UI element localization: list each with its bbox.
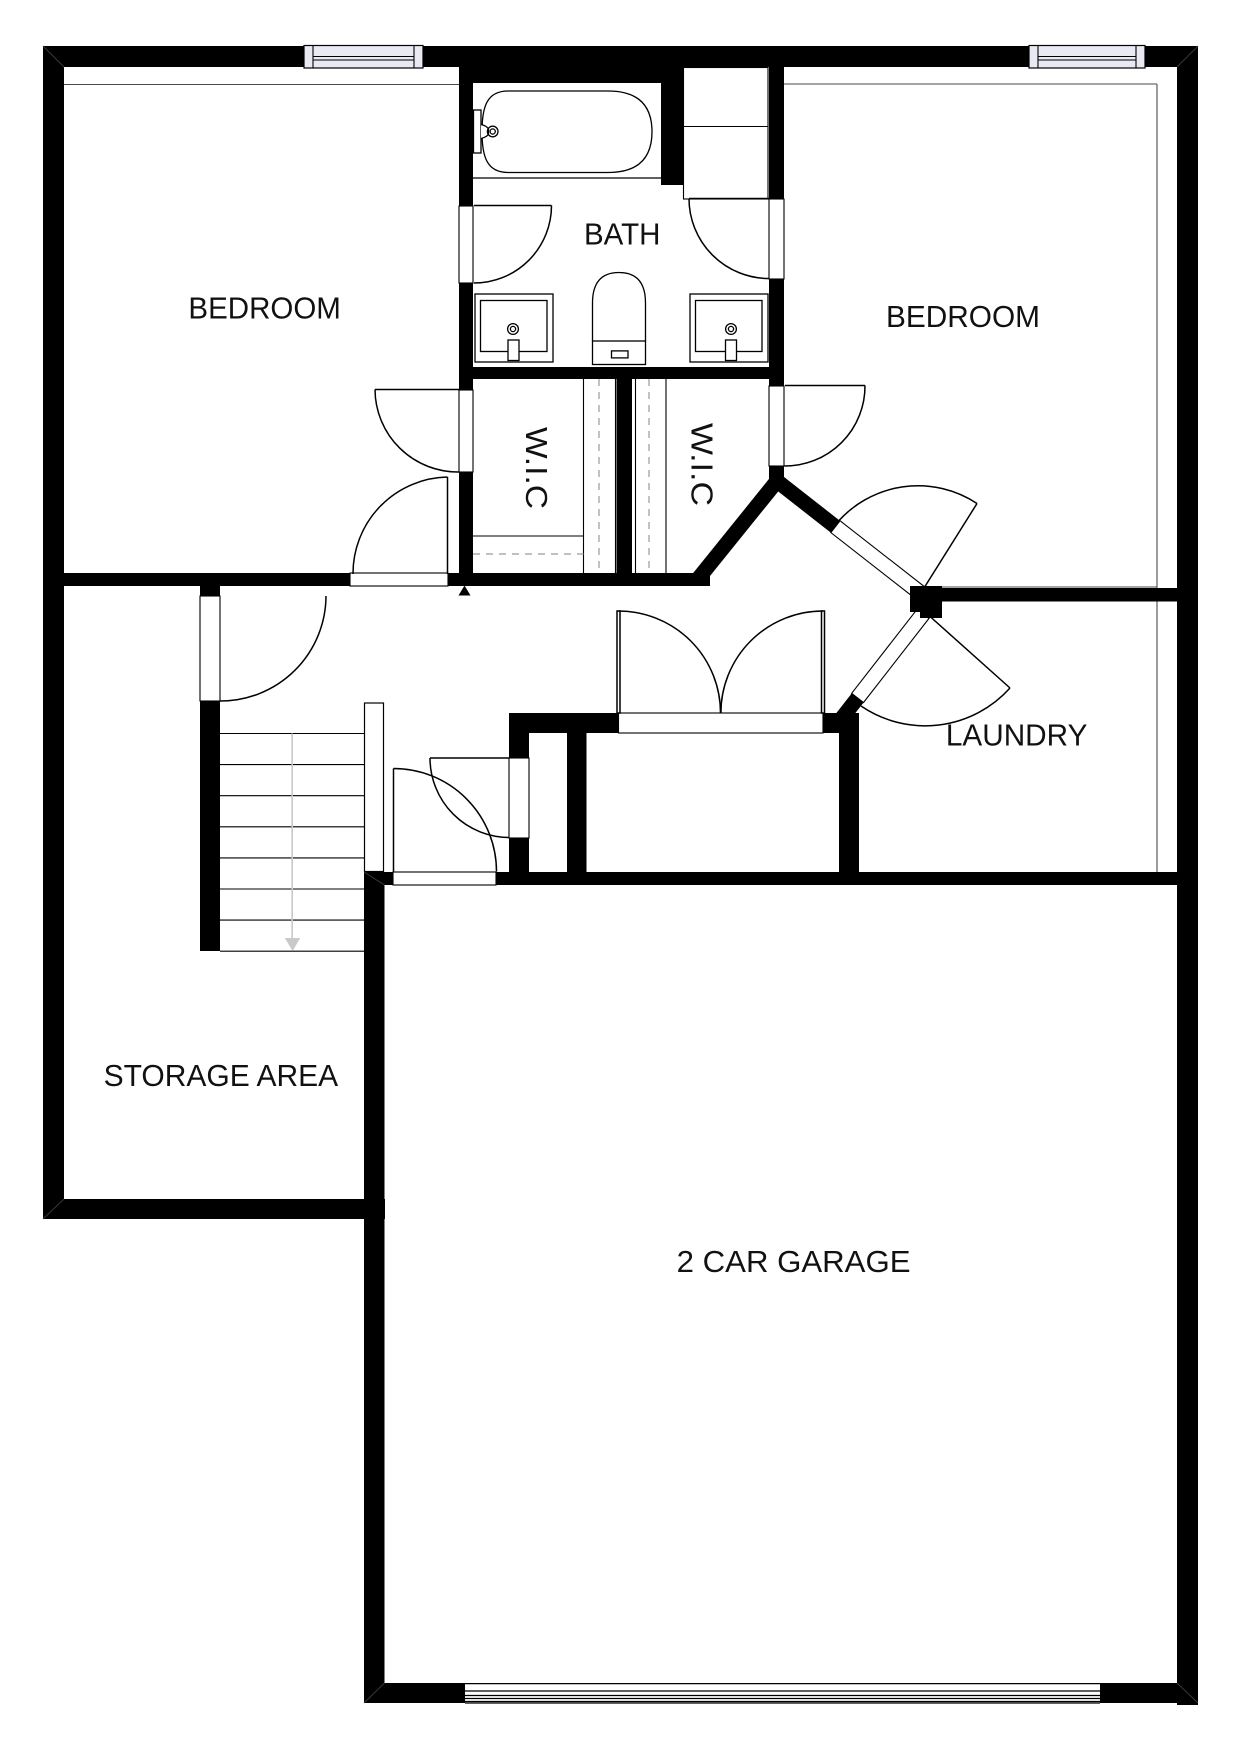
svg-text:STORAGE AREA: STORAGE AREA <box>104 1059 339 1093</box>
svg-text:W.I.C: W.I.C <box>684 423 718 506</box>
svg-text:LAUNDRY: LAUNDRY <box>946 718 1088 752</box>
svg-text:W.I.C: W.I.C <box>519 427 553 509</box>
svg-text:2 CAR GARAGE: 2 CAR GARAGE <box>677 1245 911 1279</box>
svg-text:BATH: BATH <box>584 218 661 252</box>
svg-text:BEDROOM: BEDROOM <box>188 292 341 326</box>
svg-text:BEDROOM: BEDROOM <box>886 300 1040 334</box>
